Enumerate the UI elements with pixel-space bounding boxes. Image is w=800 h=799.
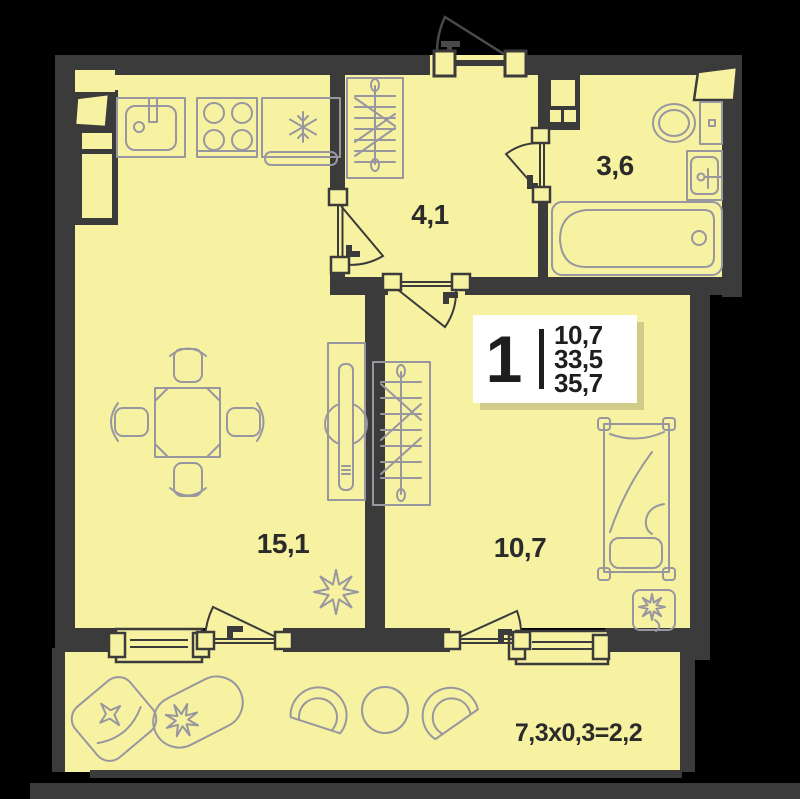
kitchen-hatch-icon [75,94,109,127]
living-window-icon [109,629,209,662]
floor-plan-drawing [0,0,800,799]
room-count: 1 [473,315,535,403]
area-values: 10,7 33,5 35,7 [554,323,603,395]
badge-divider [539,329,544,389]
apartment-summary-badge: 1 10,7 33,5 35,7 [473,315,637,403]
balcony-area-label: 7,3x0,3=2,2 [496,719,661,748]
hallway-area-label: 4,1 [395,199,465,231]
bathroom-area-label: 3,6 [580,150,650,182]
bedroom-area-label: 10,7 [480,532,560,564]
floor-plan: 4,1 3,6 15,1 10,7 7,3x0,3=2,2 1 10,7 33,… [0,0,800,799]
area-value: 35,7 [554,371,603,395]
bathroom-hatch-icon [694,67,737,100]
living-kitchen-area-label: 15,1 [243,528,323,560]
